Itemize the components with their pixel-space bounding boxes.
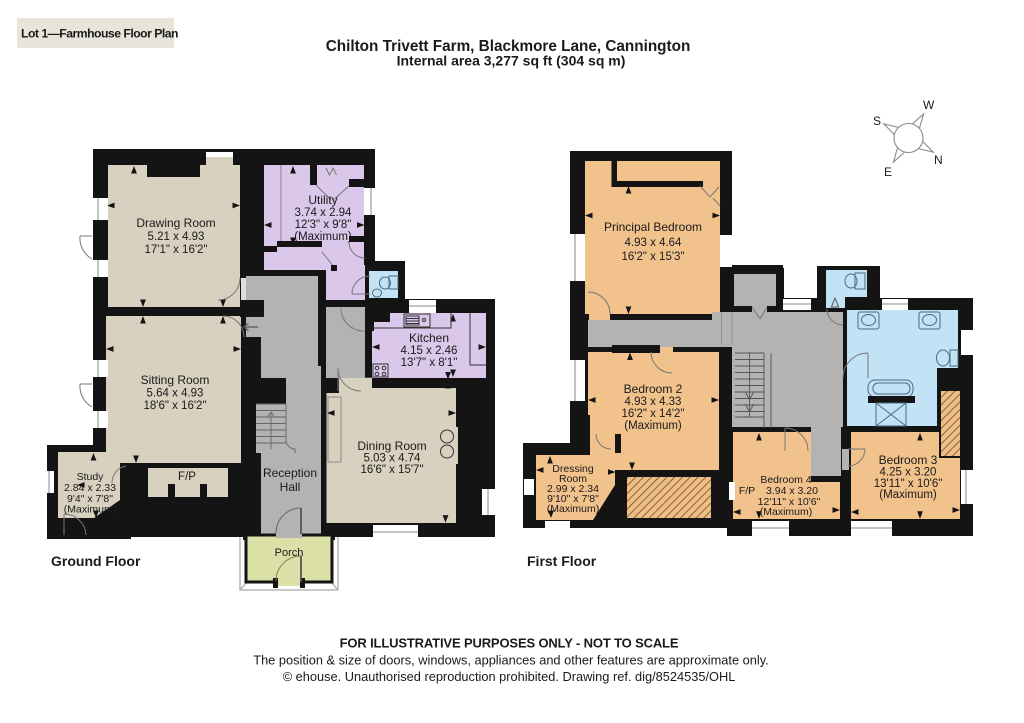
svg-text:16'6" x 15'7": 16'6" x 15'7" [360,464,423,476]
svg-text:E: E [884,165,892,179]
svg-text:16'2" x 14'2": 16'2" x 14'2" [621,408,684,420]
svg-text:F/P: F/P [739,485,755,497]
svg-text:F/P: F/P [178,471,196,483]
svg-text:17'1" x 16'2": 17'1" x 16'2" [144,244,207,256]
svg-text:5.64 x 4.93: 5.64 x 4.93 [147,388,204,400]
svg-text:S: S [873,114,881,128]
svg-text:5.21 x 4.93: 5.21 x 4.93 [148,231,205,243]
svg-text:4.93 x 4.33: 4.93 x 4.33 [625,396,682,408]
svg-text:4.25 x 3.20: 4.25 x 3.20 [880,467,937,479]
svg-text:Principal Bedroom: Principal Bedroom [604,220,702,234]
svg-text:Drawing Room: Drawing Room [136,216,215,230]
svg-text:W: W [923,98,935,112]
svg-text:Reception: Reception [263,466,317,480]
svg-text:First Floor: First Floor [527,553,597,569]
svg-text:13'7" x 8'1": 13'7" x 8'1" [401,357,458,369]
svg-text:5.03 x 4.74: 5.03 x 4.74 [364,453,422,465]
svg-text:N: N [934,153,943,167]
svg-text:Internal area 3,277 sq ft (304: Internal area 3,277 sq ft (304 sq m) [397,53,626,69]
svg-text:Sitting Room: Sitting Room [141,373,210,387]
svg-text:(Maximum): (Maximum) [64,504,117,516]
svg-text:Porch: Porch [275,547,304,559]
svg-text:Utility: Utility [308,193,337,207]
svg-text:FOR ILLUSTRATIVE PURPOSES ONLY: FOR ILLUSTRATIVE PURPOSES ONLY - NOT TO … [340,636,679,651]
svg-text:18'6" x 16'2": 18'6" x 16'2" [143,400,206,412]
svg-text:(Maximum): (Maximum) [760,506,813,518]
svg-text:Dining Room: Dining Room [357,439,426,453]
svg-text:The position & size of doors,: The position & size of doors, windows, a… [253,653,768,668]
svg-text:(Maximum): (Maximum) [879,489,937,501]
svg-text:Ground Floor: Ground Floor [51,553,141,569]
svg-text:Bedroom 2: Bedroom 2 [624,382,683,396]
svg-text:© ehouse. Unauthorised reprodu: © ehouse. Unauthorised reproduction proh… [283,669,736,684]
svg-text:12'3" x 9'8": 12'3" x 9'8" [295,219,352,231]
svg-text:Hall: Hall [280,480,301,494]
svg-text:Bedroom 3: Bedroom 3 [879,453,938,467]
svg-text:4.15 x 2.46: 4.15 x 2.46 [401,345,458,357]
svg-text:(Maximum): (Maximum) [294,231,352,243]
svg-text:(Maximum): (Maximum) [624,420,682,432]
svg-text:4.93 x 4.64: 4.93 x 4.64 [625,237,683,249]
svg-text:Kitchen: Kitchen [409,331,449,345]
svg-text:(Maximum): (Maximum) [547,503,600,515]
svg-text:3.74 x 2.94: 3.74 x 2.94 [295,207,353,219]
svg-text:16'2" x 15'3": 16'2" x 15'3" [621,251,684,263]
svg-text:Lot 1—Farmhouse Floor Plan: Lot 1—Farmhouse Floor Plan [21,27,178,41]
